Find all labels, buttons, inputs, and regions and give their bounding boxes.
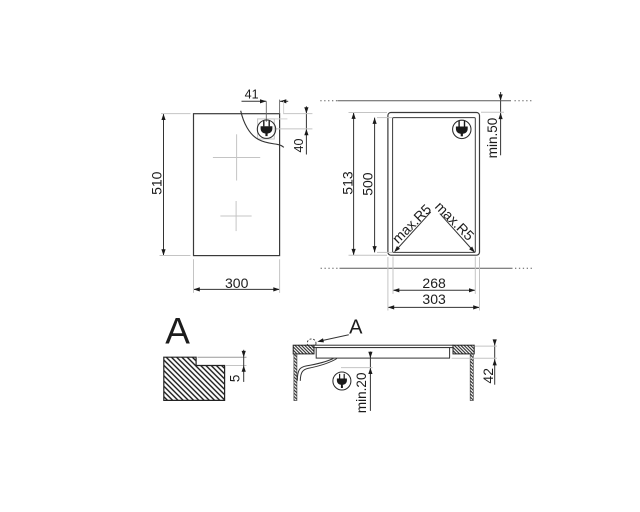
svg-text:300: 300 [225,275,249,291]
svg-text:500: 500 [360,172,376,196]
svg-text:303: 303 [422,291,446,307]
svg-text:min.50: min.50 [485,118,500,159]
svg-text:5: 5 [228,375,243,383]
svg-text:40: 40 [292,139,306,153]
svg-text:A: A [349,317,363,339]
svg-text:41: 41 [245,87,259,101]
svg-text:42: 42 [480,368,496,384]
svg-text:min.20: min.20 [354,373,369,414]
svg-text:A: A [165,310,190,351]
svg-text:max.R5: max.R5 [432,198,478,244]
svg-text:513: 513 [339,171,355,195]
svg-text:510: 510 [148,171,164,195]
svg-text:268: 268 [422,275,446,291]
svg-text:max.R5: max.R5 [389,201,435,247]
